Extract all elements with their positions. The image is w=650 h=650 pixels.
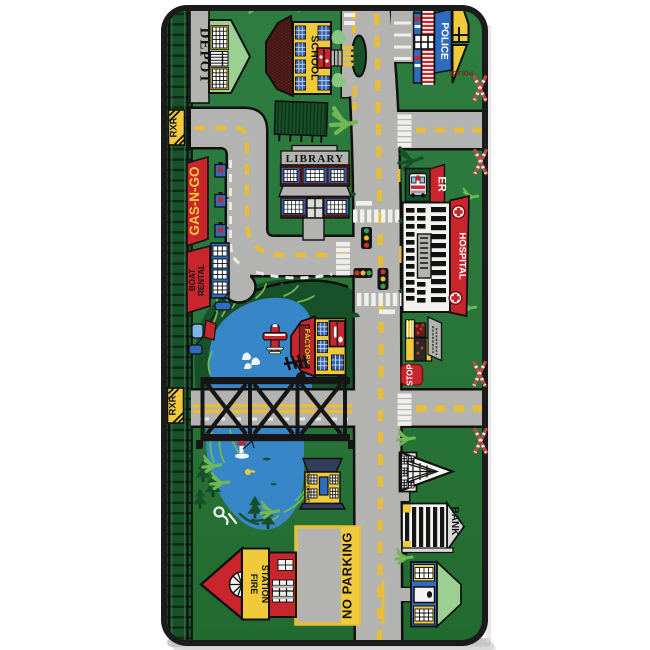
svg-text:RENTAL: RENTAL: [197, 264, 206, 296]
svg-text:BANK: BANK: [449, 507, 460, 537]
svg-text:RXR: RXR: [168, 395, 179, 415]
svg-text:POLICE: POLICE: [448, 69, 473, 76]
svg-text:HOSPITAL: HOSPITAL: [457, 232, 468, 280]
svg-text:LIBRARY: LIBRARY: [286, 153, 345, 165]
svg-text:FIRE: FIRE: [249, 574, 259, 595]
svg-text:POLICE: POLICE: [438, 22, 450, 60]
svg-text:POST OFFICE: POST OFFICE: [306, 472, 311, 502]
svg-text:STOP: STOP: [406, 364, 415, 386]
svg-text:SCHOOL: SCHOOL: [309, 36, 321, 82]
svg-text:NO PARKING: NO PARKING: [340, 532, 355, 619]
svg-text:GAS-N-GO: GAS-N-GO: [187, 167, 202, 236]
svg-text:ER: ER: [436, 176, 448, 191]
svg-text:BOAT: BOAT: [188, 269, 197, 291]
svg-text:RXR: RXR: [169, 117, 180, 137]
